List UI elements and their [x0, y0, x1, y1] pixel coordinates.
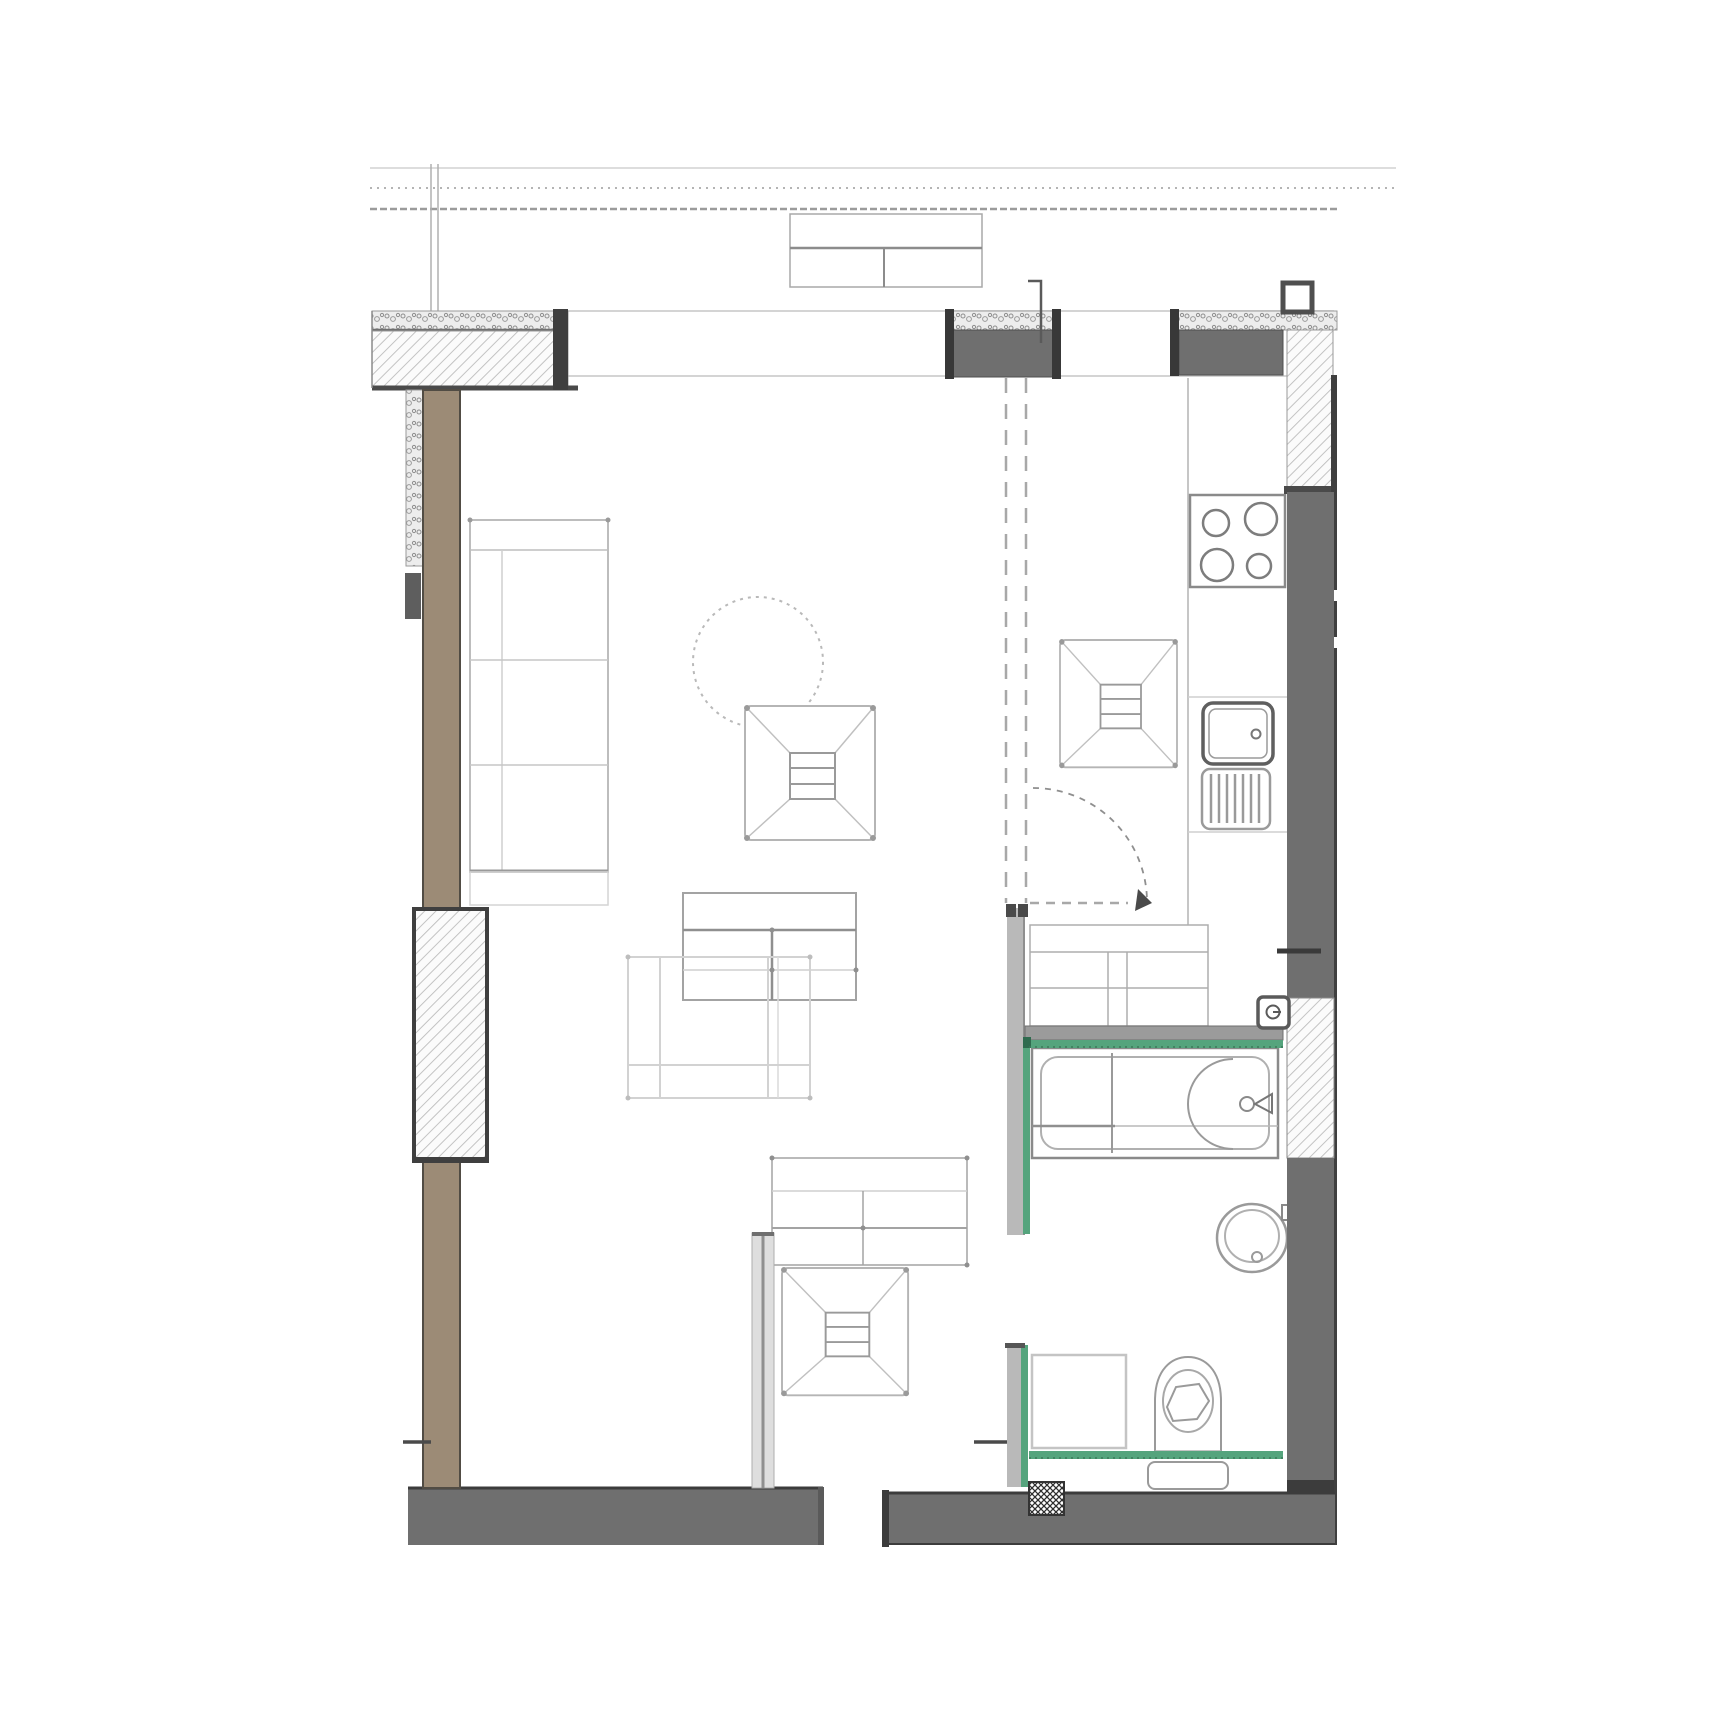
door-jamb — [1006, 904, 1016, 917]
armchair-desk — [781, 1267, 909, 1396]
bath-wall-top — [1023, 1026, 1283, 1048]
bathtub-icon — [1032, 1048, 1278, 1158]
exterior-wall-top-left — [372, 309, 578, 390]
cistern — [1148, 1462, 1228, 1489]
wall-right-bath-hatch — [1287, 998, 1334, 1158]
door-arrow — [1135, 889, 1152, 911]
wall-right-lower — [1287, 1158, 1334, 1492]
hall-dresser — [1030, 925, 1208, 1026]
floor-plan-page — [0, 0, 1718, 1718]
pillar-top-1 — [945, 281, 1061, 379]
sofa — [468, 518, 611, 906]
toilet-icon — [1148, 1357, 1228, 1489]
kitchen-counter — [1188, 378, 1287, 925]
desk — [770, 1156, 970, 1268]
switch-icon — [1258, 997, 1289, 1028]
cooktop-icon — [1190, 495, 1285, 587]
wall-left-hatch-block — [412, 909, 489, 1161]
partition-bottom-center — [752, 1233, 774, 1488]
coffee-table — [683, 893, 859, 1000]
floor-drain-crosshatch — [1029, 1482, 1064, 1515]
bath-partition-lower — [974, 1343, 1283, 1515]
door-jamb — [1018, 904, 1028, 917]
washbasin-icon — [1217, 1204, 1291, 1272]
pillar-hatched-right — [1284, 330, 1336, 494]
floor-plan-canvas — [0, 0, 1718, 1718]
green-finish-line — [1023, 1040, 1030, 1234]
drainboard-icon — [1202, 769, 1270, 829]
green-finish-line — [1021, 1345, 1028, 1487]
wall-bottom-left — [408, 1487, 824, 1545]
duct-box — [1283, 283, 1312, 312]
bath-partition-upper — [1006, 904, 1030, 1235]
balcony-table — [790, 214, 982, 287]
armchair-living — [744, 705, 876, 841]
drain-icon — [1240, 1097, 1254, 1111]
sink-icon — [1203, 703, 1273, 764]
wall-bottom-right — [882, 1490, 1335, 1547]
armchair-kitchen — [1059, 639, 1178, 768]
shower-cabinet — [1032, 1355, 1126, 1448]
